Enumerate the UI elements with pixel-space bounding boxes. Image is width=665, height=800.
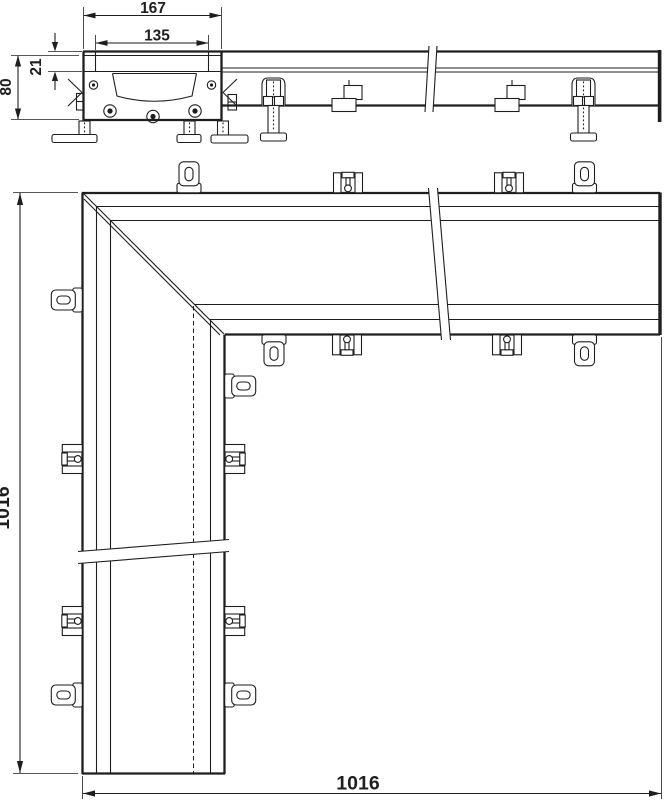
dim-label-body-height: 80 [0, 78, 15, 95]
adjustable-foot [177, 121, 201, 143]
channel-end-cap [658, 50, 662, 122]
cross-section-view [52, 52, 248, 144]
dim-label-length-left: 1016 [0, 486, 14, 530]
dim-label-grate-width: 135 [144, 28, 170, 45]
mounting-clip-slot [225, 374, 256, 398]
mounting-clip-hook [493, 335, 522, 356]
break-line [78, 540, 229, 564]
side-anchor-left [68, 79, 84, 110]
adjustable-foot [52, 121, 97, 143]
adjustable-foot [571, 78, 597, 141]
break-line [429, 188, 451, 340]
mounting-clip-hook [62, 445, 83, 474]
plan-corner-view [51, 162, 661, 774]
channel-end-cap [658, 193, 661, 336]
break-line [425, 46, 437, 112]
mounting-clip-slot [51, 683, 82, 707]
mounting-clip-slot [262, 335, 286, 366]
hook-clip [495, 80, 525, 112]
mounting-clip-slot [51, 288, 82, 312]
adjustable-foot [211, 121, 248, 143]
hook-clip [332, 80, 362, 112]
dim-label-overall-width: 167 [140, 0, 166, 17]
grate-profile [83, 52, 222, 72]
mounting-clip-hook [225, 445, 246, 474]
mounting-clip-slot [573, 162, 597, 193]
dimension-length-bottom: 1016 [83, 337, 662, 799]
dim-label-grate-depth: 21 [28, 58, 45, 76]
side-elevation-view [222, 46, 661, 141]
mounting-clip-slot [573, 335, 597, 366]
adjustable-foot [261, 78, 287, 141]
technical-drawing-canvas: 167 135 21 80 1016 [0, 0, 665, 800]
mitre-joint-lines [83, 193, 225, 336]
mounting-clip-hook [225, 607, 246, 636]
dimension-grate-width: 135 [96, 28, 209, 51]
dimension-grate-depth: 21 [28, 33, 82, 90]
mounting-clip-hook [62, 607, 83, 636]
mounting-clip-hook [334, 172, 363, 193]
dim-label-length-bottom: 1016 [336, 773, 380, 795]
trough-profile [113, 74, 197, 102]
mounting-clip-hook [495, 172, 524, 193]
mounting-clip-slot [225, 683, 256, 707]
mounting-clip-hook [333, 335, 362, 356]
mounting-clip-slot [177, 162, 201, 193]
